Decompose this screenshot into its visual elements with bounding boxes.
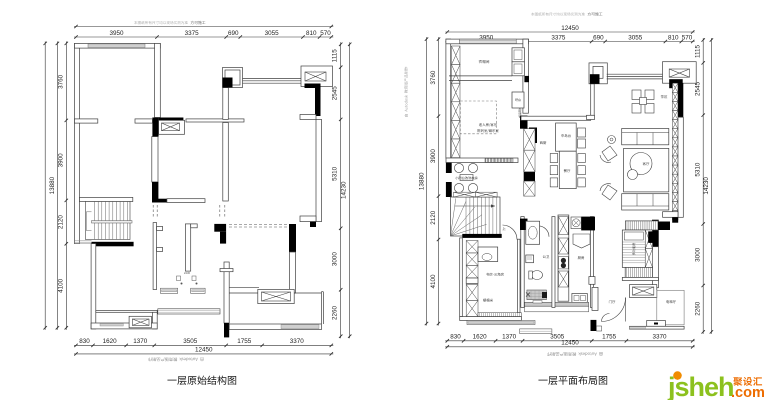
svg-text:5310: 5310 <box>331 166 338 181</box>
svg-text:1620: 1620 <box>103 338 118 345</box>
svg-text:1755: 1755 <box>602 334 617 341</box>
svg-text:830: 830 <box>450 334 461 341</box>
svg-text:1115: 1115 <box>331 49 338 63</box>
svg-text:4100: 4100 <box>430 274 437 289</box>
svg-text:2545: 2545 <box>695 82 702 97</box>
svg-text:570: 570 <box>682 34 693 41</box>
svg-text:3505: 3505 <box>183 338 198 345</box>
svg-text:3000: 3000 <box>695 247 702 262</box>
svg-text:.com: .com <box>731 385 765 400</box>
svg-text:3950: 3950 <box>109 30 124 37</box>
svg-text:3370: 3370 <box>290 338 305 345</box>
svg-text:2430: 2430 <box>184 271 191 275</box>
svg-text:5310: 5310 <box>695 162 702 177</box>
svg-text:2120: 2120 <box>430 210 437 225</box>
svg-text:690: 690 <box>228 30 239 37</box>
svg-text:1620: 1620 <box>473 334 488 341</box>
svg-text:4100: 4100 <box>58 278 65 293</box>
svg-text:14230: 14230 <box>703 177 710 195</box>
svg-text:1755: 1755 <box>237 338 252 345</box>
svg-text:12450: 12450 <box>561 340 579 347</box>
svg-text:3055: 3055 <box>265 30 280 37</box>
svg-text:12450: 12450 <box>561 25 579 32</box>
svg-text:2545: 2545 <box>331 86 338 101</box>
svg-text:13880: 13880 <box>49 176 56 194</box>
svg-text:1370: 1370 <box>502 334 517 341</box>
svg-text:12450: 12450 <box>195 347 213 354</box>
svg-text:3760: 3760 <box>58 74 65 89</box>
svg-text:3760: 3760 <box>430 70 437 85</box>
svg-text:14230: 14230 <box>340 181 347 199</box>
svg-text:810: 810 <box>668 34 679 41</box>
svg-text:3375: 3375 <box>551 34 566 41</box>
svg-text:810: 810 <box>306 30 317 37</box>
svg-text:2120: 2120 <box>58 215 65 230</box>
svg-text:2260: 2260 <box>331 306 338 321</box>
svg-text:3375: 3375 <box>185 30 200 37</box>
svg-text:570: 570 <box>320 30 331 37</box>
svg-text:1115: 1115 <box>695 44 702 58</box>
svg-text:3370: 3370 <box>652 334 667 341</box>
svg-text:3000: 3000 <box>331 252 338 267</box>
svg-text:3055: 3055 <box>628 34 643 41</box>
svg-text:3900: 3900 <box>58 153 65 168</box>
svg-text:2260: 2260 <box>695 301 702 316</box>
svg-text:13880: 13880 <box>419 172 426 190</box>
svg-text:690: 690 <box>593 34 604 41</box>
svg-text:830: 830 <box>79 338 90 345</box>
svg-text:3900: 3900 <box>430 149 437 164</box>
svg-text:1370: 1370 <box>133 338 148 345</box>
